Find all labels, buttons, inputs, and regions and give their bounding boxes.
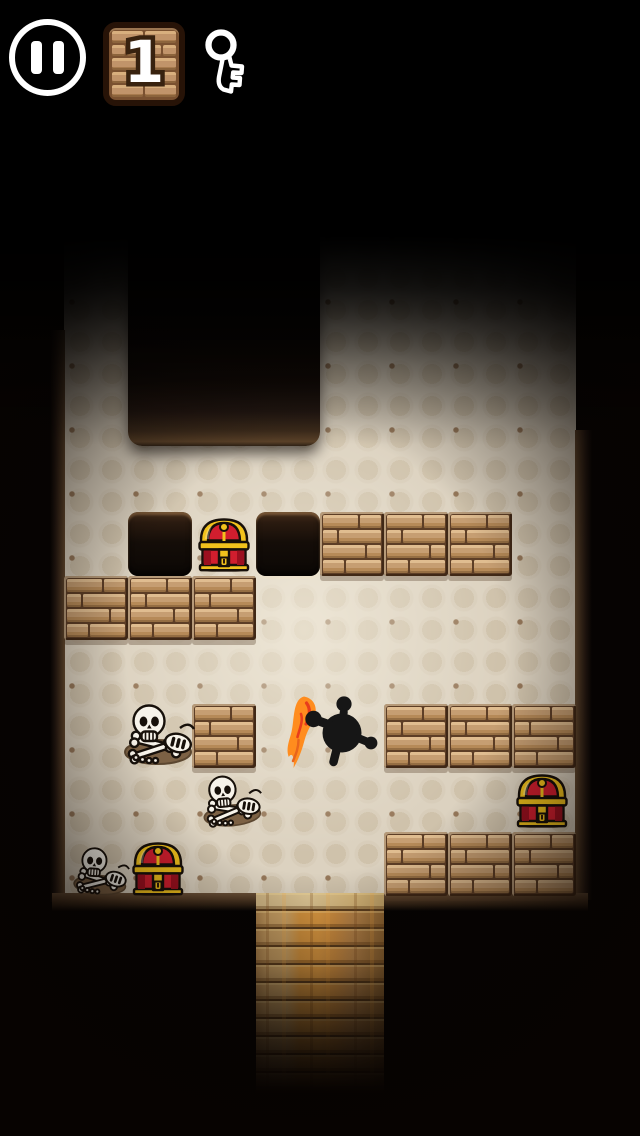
pause-icon — [53, 41, 64, 74]
brick-course — [387, 880, 445, 893]
pause-icon — [31, 41, 42, 74]
treasure-chest[interactable] — [196, 514, 252, 572]
brick-course — [451, 880, 509, 893]
brick — [218, 752, 253, 765]
brick-course — [67, 594, 125, 607]
brick — [104, 579, 125, 592]
skeleton — [114, 700, 202, 768]
brick — [387, 850, 401, 863]
brick — [495, 545, 509, 558]
game-screen: 1 1 — [0, 0, 640, 1136]
brick — [239, 737, 253, 750]
brick-course — [323, 545, 381, 558]
brick — [538, 880, 573, 893]
treasure-chest[interactable] — [130, 838, 186, 896]
brick-course — [323, 560, 381, 573]
brick-block — [128, 576, 192, 640]
brick-course — [323, 515, 381, 528]
level-number: 1 — [109, 24, 179, 100]
brick — [323, 530, 337, 543]
brick-course — [451, 545, 509, 558]
brick — [195, 624, 216, 637]
brick-course — [195, 737, 253, 750]
brick — [111, 609, 125, 622]
brick — [323, 545, 365, 558]
brick-course — [387, 722, 445, 735]
brick — [488, 835, 509, 848]
brick — [346, 560, 381, 573]
treasure-chest-sprite — [514, 770, 570, 828]
brick — [410, 880, 445, 893]
brick — [387, 515, 422, 528]
brick — [559, 865, 573, 878]
brick-course — [451, 850, 509, 863]
brick — [451, 850, 465, 863]
brick-block — [512, 704, 576, 768]
brick-course — [323, 530, 381, 543]
brick — [232, 707, 253, 720]
wooden-bridge — [256, 893, 384, 1093]
brick — [387, 737, 429, 750]
brick — [403, 530, 445, 543]
brick — [83, 594, 125, 607]
treasure-chest[interactable] — [514, 770, 570, 828]
brick — [323, 560, 344, 573]
brick — [467, 722, 509, 735]
brick-course — [67, 609, 125, 622]
brick-block — [384, 832, 448, 896]
brick — [451, 722, 465, 735]
brick-course — [387, 850, 445, 863]
brick — [387, 545, 429, 558]
floor-hole — [128, 512, 192, 576]
treasure-chest-sprite — [196, 514, 252, 572]
brick-block — [448, 832, 512, 896]
brick — [474, 752, 509, 765]
brick — [424, 707, 445, 720]
brick — [515, 707, 550, 720]
brick-course — [515, 707, 573, 720]
brick — [515, 722, 529, 735]
brick-course — [195, 594, 253, 607]
brick — [424, 835, 445, 848]
brick — [195, 594, 209, 607]
brick — [211, 594, 253, 607]
brick — [474, 560, 509, 573]
brick-course — [451, 737, 509, 750]
brick-course — [195, 579, 253, 592]
brick — [451, 545, 493, 558]
skeleton — [65, 842, 137, 900]
brick — [367, 545, 381, 558]
brick-course — [451, 707, 509, 720]
game-board[interactable] — [0, 0, 640, 1136]
brick — [495, 865, 509, 878]
brick — [515, 850, 529, 863]
brick-course — [387, 515, 445, 528]
brick — [495, 737, 509, 750]
brick-course — [515, 865, 573, 878]
dirt-edge-right — [575, 430, 592, 900]
brick — [467, 530, 509, 543]
brick — [559, 737, 573, 750]
brick — [387, 880, 408, 893]
brick-course — [451, 865, 509, 878]
brick-course — [515, 880, 573, 893]
brick-block — [448, 704, 512, 768]
brick — [410, 560, 445, 573]
brick — [131, 609, 173, 622]
brick-course — [131, 609, 189, 622]
brick-course — [195, 752, 253, 765]
brick-course — [515, 850, 573, 863]
level-indicator: 1 1 — [103, 22, 185, 106]
brick-course — [515, 722, 573, 735]
brick — [218, 624, 253, 637]
brick — [387, 835, 422, 848]
treasure-chest-sprite — [130, 838, 186, 896]
brick — [131, 579, 166, 592]
brick — [424, 515, 445, 528]
brick-course — [451, 530, 509, 543]
brick — [431, 865, 445, 878]
skeleton-sprite — [65, 842, 137, 900]
brick — [403, 850, 445, 863]
skeleton-sprite — [114, 700, 202, 768]
brick — [67, 594, 81, 607]
brick-course — [451, 560, 509, 573]
brick — [451, 515, 486, 528]
brick-course — [195, 722, 253, 735]
brick — [339, 530, 381, 543]
brick — [67, 609, 109, 622]
brick — [239, 609, 253, 622]
brick — [90, 624, 125, 637]
brick-course — [515, 835, 573, 848]
brick — [147, 594, 189, 607]
brick — [431, 737, 445, 750]
brick — [175, 609, 189, 622]
brick — [474, 880, 509, 893]
brick-block — [64, 576, 128, 640]
brick-course — [387, 865, 445, 878]
dirt-edge-left — [50, 330, 65, 902]
dark-pit — [128, 230, 320, 446]
brick — [403, 722, 445, 735]
key-icon — [203, 27, 249, 99]
brick — [538, 752, 573, 765]
brick — [131, 624, 152, 637]
brick — [451, 560, 472, 573]
brick-course — [451, 722, 509, 735]
brick — [431, 545, 445, 558]
brick — [515, 835, 550, 848]
brick-block — [448, 512, 512, 576]
skeleton — [191, 768, 271, 832]
bridge-shadow-fade — [256, 893, 384, 1093]
brick — [154, 624, 189, 637]
brick — [515, 737, 557, 750]
brick — [387, 752, 408, 765]
brick — [467, 850, 509, 863]
brick-block — [384, 704, 448, 768]
brick-course — [387, 530, 445, 543]
brick — [323, 515, 358, 528]
brick — [387, 865, 429, 878]
brick-course — [67, 579, 125, 592]
brick-course — [67, 624, 125, 637]
torch-flame — [288, 697, 316, 769]
brick-block — [384, 512, 448, 576]
brick-course — [195, 609, 253, 622]
floor-hole — [256, 512, 320, 576]
brick — [387, 560, 408, 573]
brick-course — [515, 752, 573, 765]
player-sprite — [278, 688, 378, 783]
brick — [488, 515, 509, 528]
brick — [131, 594, 145, 607]
brick — [451, 752, 472, 765]
brick — [387, 530, 401, 543]
brick — [451, 707, 486, 720]
brick — [531, 722, 573, 735]
brick — [211, 722, 253, 735]
brick — [168, 579, 189, 592]
brick-course — [451, 515, 509, 528]
brick — [488, 707, 509, 720]
brick-course — [387, 752, 445, 765]
brick — [360, 515, 381, 528]
brick-block — [320, 512, 384, 576]
brick-course — [387, 835, 445, 848]
brick-block — [192, 576, 256, 640]
brick-course — [451, 835, 509, 848]
brick — [451, 865, 493, 878]
brick — [451, 835, 486, 848]
brick-block — [512, 832, 576, 896]
brick — [552, 707, 573, 720]
brick — [67, 624, 88, 637]
brick — [515, 752, 536, 765]
brick — [67, 579, 102, 592]
brick-course — [387, 545, 445, 558]
brick-course — [387, 560, 445, 573]
brick — [387, 722, 401, 735]
brick — [515, 880, 536, 893]
brick — [451, 737, 493, 750]
brick — [195, 579, 230, 592]
brick-course — [131, 579, 189, 592]
player-character[interactable] — [278, 688, 378, 783]
brick-course — [387, 737, 445, 750]
brick-course — [195, 624, 253, 637]
brick-course — [515, 737, 573, 750]
brick — [195, 609, 237, 622]
brick — [410, 752, 445, 765]
brick — [451, 880, 472, 893]
brick — [451, 530, 465, 543]
brick-course — [195, 707, 253, 720]
brick-course — [131, 624, 189, 637]
skeleton-sprite — [191, 768, 271, 832]
brick-course — [387, 707, 445, 720]
brick — [232, 579, 253, 592]
brick — [552, 835, 573, 848]
brick — [531, 850, 573, 863]
pause-button[interactable] — [9, 19, 86, 96]
brick — [387, 707, 422, 720]
brick-course — [451, 752, 509, 765]
brick-course — [131, 594, 189, 607]
brick — [515, 865, 557, 878]
